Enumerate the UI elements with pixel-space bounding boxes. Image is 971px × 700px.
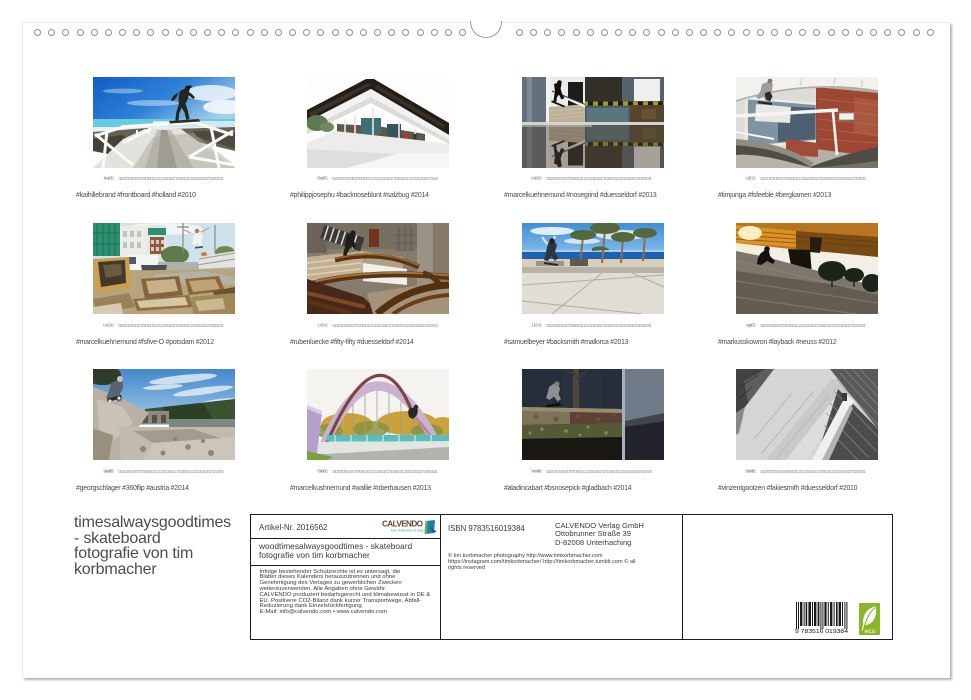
svg-text:Januar 2016: Januar 2016 bbox=[103, 176, 114, 181]
svg-text:Mai 2016: Mai 2016 bbox=[103, 322, 114, 327]
svg-text:01 02 03 04 05 06 07 08 09 10: 01 02 03 04 05 06 07 08 09 10 11 12 13 1… bbox=[118, 469, 224, 475]
svg-text:01 02 03 04 05 06 07 08 09 10: 01 02 03 04 05 06 07 08 09 10 11 12 13 1… bbox=[546, 469, 652, 475]
svg-text:eco: eco bbox=[865, 628, 877, 635]
svg-text:01 02 03 04 05 06 07 08 09 10: 01 02 03 04 05 06 07 08 09 10 11 12 13 1… bbox=[118, 176, 224, 182]
svg-text:Oktober 2016: Oktober 2016 bbox=[317, 469, 328, 474]
svg-text:01 02 03 04 05 06 07 08 09 10: 01 02 03 04 05 06 07 08 09 10 11 12 13 1… bbox=[760, 469, 866, 475]
svg-text:September 2016: September 2016 bbox=[103, 469, 114, 474]
svg-text:01 02 03 04 05 06 07 08 09 10: 01 02 03 04 05 06 07 08 09 10 11 12 13 1… bbox=[760, 323, 866, 329]
svg-text:01 02 03 04 05 06 07 08 09 10: 01 02 03 04 05 06 07 08 09 10 11 12 13 1… bbox=[546, 176, 652, 182]
svg-text:Juli 2016: Juli 2016 bbox=[531, 322, 542, 327]
svg-text:November 2016: November 2016 bbox=[531, 469, 542, 474]
svg-text:Februar 2016: Februar 2016 bbox=[317, 176, 328, 181]
svg-text:9 783516 019384: 9 783516 019384 bbox=[795, 629, 848, 634]
svg-text:01 02 03 04 05 06 07 08 09 10: 01 02 03 04 05 06 07 08 09 10 11 12 13 1… bbox=[332, 323, 438, 329]
svg-text:März 2016: März 2016 bbox=[531, 176, 542, 181]
svg-text:01 02 03 04 05 06 07 08 09 10: 01 02 03 04 05 06 07 08 09 10 11 12 13 1… bbox=[546, 323, 652, 329]
svg-text:01 02 03 04 05 06 07 08 09 10: 01 02 03 04 05 06 07 08 09 10 11 12 13 1… bbox=[332, 469, 438, 475]
svg-text:April 2016: April 2016 bbox=[745, 176, 756, 181]
svg-text:Juni 2016: Juni 2016 bbox=[317, 322, 328, 327]
svg-text:01 02 03 04 05 06 07 08 09 10: 01 02 03 04 05 06 07 08 09 10 11 12 13 1… bbox=[118, 323, 224, 329]
svg-text:CALVENDO: CALVENDO bbox=[382, 520, 424, 529]
svg-text:Dezember 2016: Dezember 2016 bbox=[745, 469, 756, 474]
svg-text:01 02 03 04 05 06 07 08 09 10: 01 02 03 04 05 06 07 08 09 10 11 12 13 1… bbox=[760, 176, 866, 182]
svg-text:Der Kalenderverlag: Der Kalenderverlag bbox=[391, 529, 423, 533]
svg-text:August 2016: August 2016 bbox=[745, 322, 756, 327]
svg-text:01 02 03 04 05 06 07 08 09 10: 01 02 03 04 05 06 07 08 09 10 11 12 13 1… bbox=[332, 176, 438, 182]
